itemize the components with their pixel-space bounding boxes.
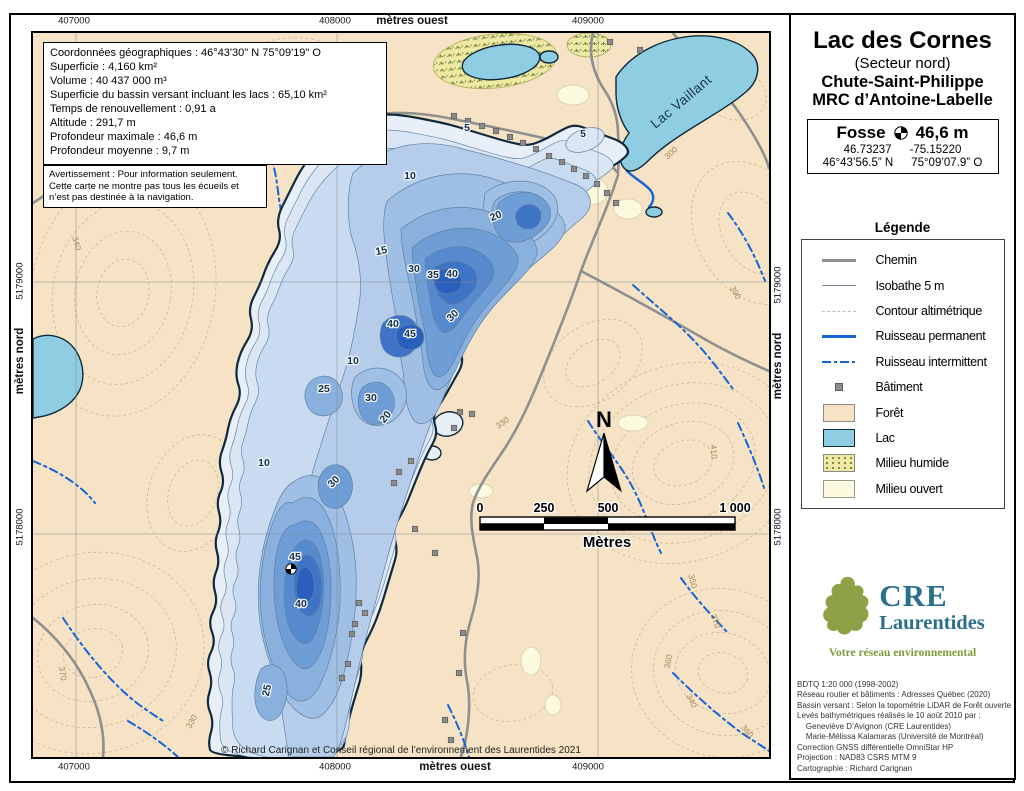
- legend-swatch-batiment: [835, 383, 843, 391]
- lake-statistics-box: Coordonnées géographiques : 46°43'30" N …: [43, 42, 387, 165]
- lake-statistic-line: Profondeur maximale : 46,6 m: [50, 131, 380, 145]
- logo-acronym: CRE: [879, 580, 985, 611]
- building-icon: [339, 675, 345, 681]
- map-label: 45: [289, 551, 301, 563]
- cre-laurentides-logo: CRE Laurentides: [791, 571, 1014, 643]
- legend-box: CheminIsobathe 5 mContour altimétriqueRu…: [801, 239, 1005, 509]
- lake-statistic-line: Temps de renouvellement : 0,91 a: [50, 103, 380, 117]
- building-icon: [559, 159, 565, 165]
- fosse-depth: 46,6 m: [916, 123, 969, 143]
- lake-statistic-line: Superficie du bassin versant incluant le…: [50, 89, 380, 103]
- building-icon: [362, 610, 368, 616]
- credit-line: Marie-Mélissa Kalamaras (Université de M…: [797, 731, 1011, 741]
- legend-label: Milieu humide: [876, 456, 949, 470]
- building-icon: [546, 153, 552, 159]
- lake-statistic-line: Coordonnées géographiques : 46°43'30" N …: [50, 47, 380, 61]
- laurentides-region-icon: [820, 571, 872, 643]
- legend-item-rperm: Ruisseau permanent: [802, 324, 1004, 349]
- warning-line: Cette carte ne montre pas tous les écuei…: [49, 181, 261, 193]
- map-label: 10: [347, 355, 359, 367]
- building-icon: [448, 737, 454, 743]
- building-icon: [637, 47, 643, 53]
- building-icon: [493, 128, 499, 134]
- building-icon: [412, 526, 418, 532]
- legend-swatch-foret: [823, 404, 855, 422]
- map-label: 30: [408, 263, 420, 275]
- lake-statistic-line: Volume : 40 437 000 m³: [50, 75, 380, 89]
- legend-swatch-rint: [822, 361, 856, 364]
- fosse-marker-icon: [894, 126, 908, 140]
- axis-label-left: mètres nord: [14, 328, 26, 394]
- warning-line: Avertissement : Pour information seuleme…: [49, 169, 261, 181]
- map-frame: 3003304103503703603403803203403903603303…: [31, 31, 771, 759]
- building-icon: [520, 140, 526, 146]
- map-label: 40: [295, 598, 307, 610]
- legend-label: Contour altimétrique: [876, 304, 983, 318]
- credit-line: Geneviève D’Avignon (CRE Laurentides): [797, 721, 1011, 731]
- map-label: 40: [446, 268, 458, 280]
- map-label: 500: [598, 501, 619, 515]
- map-label: 410: [708, 444, 719, 459]
- credit-line: Cartographie : Richard Carignan: [797, 763, 1011, 773]
- credit-line: Correction GNSS différentielle OmniStar …: [797, 742, 1011, 752]
- legend-item-chemin: Chemin: [802, 248, 1004, 273]
- map-label: 10: [258, 457, 270, 469]
- building-icon: [451, 425, 457, 431]
- building-icon: [460, 630, 466, 636]
- map-label: 0: [477, 501, 484, 515]
- credit-line: BDTQ 1:20 000 (1998-2002): [797, 679, 1011, 689]
- credit-line: Bassin versant : Selon la topométrie LiD…: [797, 700, 1011, 710]
- legend-label: Bâtiment: [876, 380, 923, 394]
- map-label: 1 000: [719, 501, 750, 515]
- legend-label: Isobathe 5 m: [876, 279, 945, 293]
- building-icon: [456, 670, 462, 676]
- building-icon: [479, 123, 485, 129]
- building-icon: [352, 621, 358, 627]
- axis-label-top: 407000: [58, 16, 90, 27]
- side-panel: Lac des Cornes (Secteur nord) Chute-Sain…: [789, 13, 1016, 780]
- building-icon: [391, 480, 397, 486]
- building-icon: [594, 181, 600, 187]
- map-label: 5: [464, 122, 470, 134]
- legend-swatch-contour: [822, 311, 856, 312]
- axis-label-bottom: 409000: [572, 762, 604, 773]
- legend-label: Forêt: [876, 406, 904, 420]
- building-icon: [457, 409, 463, 415]
- fosse-marker-icon: [286, 564, 296, 574]
- legend-swatch-lac: [823, 429, 855, 447]
- fosse-lon-dms: 75°09’07.9” O: [911, 157, 982, 169]
- map-label: 250: [534, 501, 555, 515]
- title-block: Lac des Cornes (Secteur nord) Chute-Sain…: [791, 28, 1014, 110]
- legend-swatch-humide: [823, 454, 855, 472]
- map-label: 10: [404, 170, 416, 182]
- axis-label-right: mètres nord: [772, 333, 784, 399]
- axis-label-top: 408000: [319, 16, 351, 27]
- legend-label: Ruisseau permanent: [876, 329, 986, 343]
- page: 3003304103503703603403803203403903603303…: [0, 0, 1024, 791]
- page-title: Lac des Cornes: [791, 28, 1014, 55]
- fosse-lat-decimal: 46.73237: [844, 144, 892, 156]
- legend-swatch-isobathe: [822, 285, 856, 286]
- north-label: N: [596, 407, 612, 432]
- legend-item-lac: Lac: [802, 425, 1004, 450]
- scale-unit-label: Mètres: [583, 534, 631, 551]
- lake-statistic-line: Profondeur moyenne : 9,7 m: [50, 145, 380, 159]
- building-icon: [432, 550, 438, 556]
- axis-label-bottom: 408000: [319, 762, 351, 773]
- legend-title: Légende: [791, 220, 1014, 235]
- warning-line: n’est pas destinée à la navigation.: [49, 192, 261, 204]
- map-label: 45: [404, 328, 416, 340]
- credit-line: Réseau routier et bâtiments : Adresses Q…: [797, 689, 1011, 699]
- axis-label-bottom: 407000: [58, 762, 90, 773]
- map-copyright: © Richard Carignan et Conseil régional d…: [33, 745, 769, 756]
- legend-swatch-rperm: [822, 335, 856, 338]
- legend-label: Lac: [876, 431, 895, 445]
- building-icon: [345, 661, 351, 667]
- mrc-label: MRC d’Antoine-Labelle: [791, 91, 1014, 109]
- lake-statistic-line: Superficie : 4,160 km²: [50, 61, 380, 75]
- building-icon: [583, 173, 589, 179]
- map-label: 35: [427, 269, 439, 281]
- building-icon: [604, 190, 610, 196]
- building-icon: [613, 200, 619, 206]
- axis-label-bottom: mètres ouest: [419, 761, 491, 773]
- map-label: 25: [318, 383, 330, 395]
- legend-label: Chemin: [876, 253, 917, 267]
- legend-item-contour: Contour altimétrique: [802, 298, 1004, 323]
- logo-name: Laurentides: [879, 613, 985, 634]
- axis-label-left: 5178000: [15, 509, 26, 546]
- fosse-lat-dms: 46°43’56.5” N: [823, 157, 893, 169]
- legend-swatch-ouvert: [823, 480, 855, 498]
- building-icon: [607, 39, 613, 45]
- credit-line: Levés bathymétriques réalisés le 10 août…: [797, 710, 1011, 720]
- building-icon: [442, 717, 448, 723]
- credit-line: Projection : NAD83 CSRS MTM 9: [797, 752, 1011, 762]
- building-icon: [507, 134, 513, 140]
- legend-item-batiment: Bâtiment: [802, 375, 1004, 400]
- legend-item-ouvert: Milieu ouvert: [802, 476, 1004, 501]
- legend-item-rint: Ruisseau intermittent: [802, 349, 1004, 374]
- logo-text: CRE Laurentides: [879, 580, 985, 634]
- building-icon: [356, 600, 362, 606]
- building-icon: [451, 113, 457, 119]
- axis-label-top: mètres ouest: [376, 15, 448, 27]
- map-label: 5: [580, 128, 586, 140]
- legend-item-isobathe: Isobathe 5 m: [802, 273, 1004, 298]
- building-icon: [571, 166, 577, 172]
- credits-block: BDTQ 1:20 000 (1998-2002)Réseau routier …: [797, 679, 1011, 773]
- fosse-box: Fosse 46,6 m 46.73237 -75.15220 46°43’56…: [807, 119, 999, 174]
- warning-box: Avertissement : Pour information seuleme…: [43, 165, 267, 208]
- map-label: 30: [365, 392, 377, 404]
- fosse-lon-decimal: -75.15220: [910, 144, 962, 156]
- building-icon: [469, 411, 475, 417]
- lake-statistic-line: Altitude : 291,7 m: [50, 117, 380, 131]
- axis-label-right: 5178000: [773, 509, 784, 546]
- building-icon: [349, 631, 355, 637]
- legend-label: Ruisseau intermittent: [876, 355, 987, 369]
- fosse-label: Fosse: [836, 123, 885, 143]
- legend-item-humide: Milieu humide: [802, 451, 1004, 476]
- legend-swatch-chemin: [822, 259, 856, 262]
- map-label: 40: [387, 318, 399, 330]
- building-icon: [533, 146, 539, 152]
- axis-label-top: 409000: [572, 16, 604, 27]
- page-subtitle: (Secteur nord): [791, 56, 1014, 73]
- axis-label-left: 5179000: [15, 263, 26, 300]
- building-icon: [396, 469, 402, 475]
- municipality-label: Chute-Saint-Philippe: [791, 73, 1014, 91]
- legend-item-foret: Forêt: [802, 400, 1004, 425]
- logo-tagline: Votre réseau environnemental: [791, 647, 1014, 659]
- legend-label: Milieu ouvert: [876, 482, 943, 496]
- axis-label-right: 5179000: [773, 267, 784, 304]
- building-icon: [408, 458, 414, 464]
